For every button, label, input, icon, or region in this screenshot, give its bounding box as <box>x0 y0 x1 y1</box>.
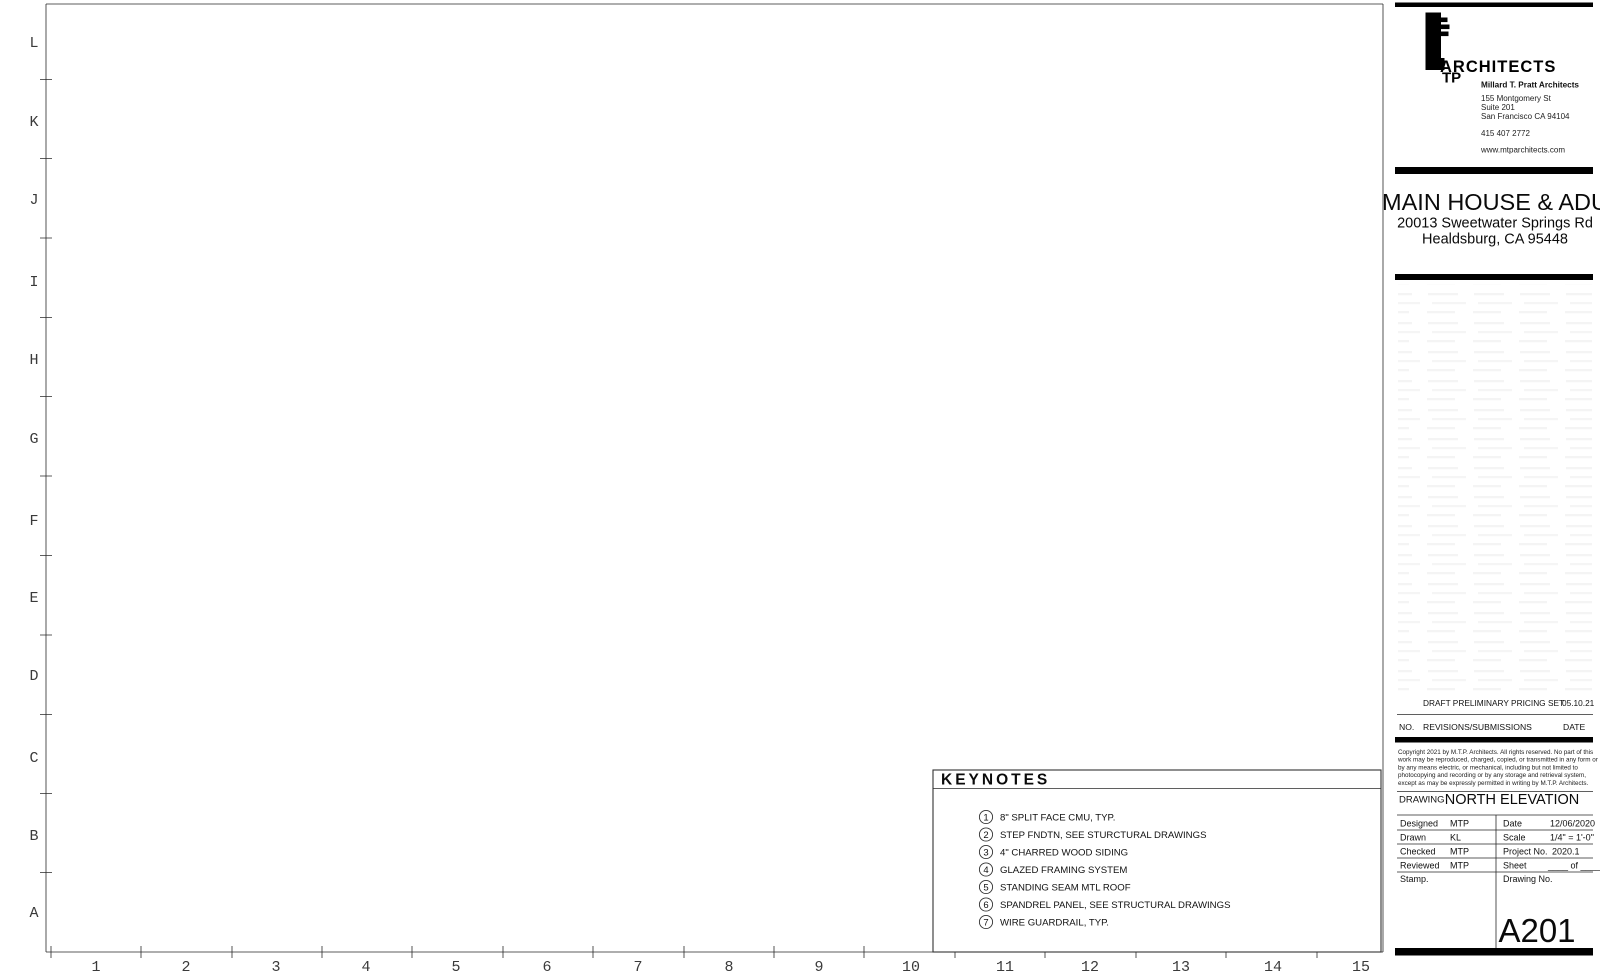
svg-text:M: M <box>1427 70 1440 87</box>
svg-text:Drawn: Drawn <box>1400 833 1426 843</box>
svg-text:Project No.: Project No. <box>1503 847 1548 857</box>
svg-text:2: 2 <box>181 959 190 976</box>
svg-text:2: 2 <box>983 830 988 841</box>
svg-text:4" CHARRED WOOD SIDING: 4" CHARRED WOOD SIDING <box>1000 848 1128 859</box>
svg-text:MAIN HOUSE & ADU: MAIN HOUSE & ADU <box>1382 189 1600 215</box>
svg-text:1: 1 <box>91 959 100 976</box>
svg-text:NO.: NO. <box>1399 722 1414 732</box>
svg-text:by any means electric, or mech: by any means electric, or mechanical, in… <box>1398 764 1578 771</box>
svg-text:6: 6 <box>983 900 988 911</box>
svg-text:9: 9 <box>814 959 823 976</box>
svg-text:K: K <box>29 114 38 131</box>
svg-text:G: G <box>29 431 38 448</box>
svg-text:____ of ____: ____ of ____ <box>1547 861 1600 871</box>
svg-text:Stamp.: Stamp. <box>1400 874 1429 884</box>
svg-text:10: 10 <box>902 959 920 976</box>
svg-text:Checked: Checked <box>1400 847 1436 857</box>
svg-text:DATE: DATE <box>1563 722 1586 732</box>
svg-text:4: 4 <box>361 959 370 976</box>
svg-text:I: I <box>29 274 38 291</box>
svg-text:F: F <box>29 513 38 530</box>
svg-text:5: 5 <box>451 959 460 976</box>
svg-text:A: A <box>29 905 38 922</box>
svg-text:2020.1: 2020.1 <box>1552 847 1580 857</box>
svg-text:B: B <box>29 828 38 845</box>
svg-text:20013 Sweetwater Springs Rd: 20013 Sweetwater Springs Rd <box>1397 216 1593 232</box>
svg-text:Copyright 2021 by M.T.P. Archi: Copyright 2021 by M.T.P. Architects. All… <box>1398 749 1593 756</box>
svg-text:STEP FNDTN, SEE STURCTURAL DRA: STEP FNDTN, SEE STURCTURAL DRAWINGS <box>1000 830 1206 841</box>
svg-text:Healdsburg, CA 95448: Healdsburg, CA 95448 <box>1422 232 1568 248</box>
svg-text:NORTH ELEVATION: NORTH ELEVATION <box>1445 792 1580 808</box>
svg-text:GLAZED FRAMING SYSTEM: GLAZED FRAMING SYSTEM <box>1000 865 1127 876</box>
svg-text:STANDING SEAM MTL ROOF: STANDING SEAM MTL ROOF <box>1000 883 1131 894</box>
svg-text:H: H <box>29 352 38 369</box>
svg-text:5: 5 <box>983 883 988 894</box>
svg-text:12/06/2020: 12/06/2020 <box>1550 819 1595 829</box>
svg-text:www.mtparchitects.com: www.mtparchitects.com <box>1480 146 1565 155</box>
svg-text:work may be reproduced, charge: work may be reproduced, charged, copied,… <box>1397 757 1598 764</box>
svg-text:Drawing No.: Drawing No. <box>1503 874 1553 884</box>
svg-text:MTP: MTP <box>1450 847 1469 857</box>
svg-text:DRAWING: DRAWING <box>1399 795 1445 806</box>
svg-text:L: L <box>29 35 38 52</box>
svg-text:MTP: MTP <box>1450 819 1469 829</box>
svg-text:1: 1 <box>983 813 988 824</box>
svg-text:7: 7 <box>633 959 642 976</box>
svg-text:8" SPLIT FACE CMU, TYP.: 8" SPLIT FACE CMU, TYP. <box>1000 813 1115 824</box>
svg-text:Reviewed: Reviewed <box>1400 861 1440 871</box>
svg-text:SPANDREL PANEL, SEE STRUCTURAL: SPANDREL PANEL, SEE STRUCTURAL DRAWINGS <box>1000 900 1230 911</box>
svg-text:WIRE GUARDRAIL, TYP.: WIRE GUARDRAIL, TYP. <box>1000 918 1109 929</box>
svg-text:Date: Date <box>1503 819 1522 829</box>
svg-text:7: 7 <box>983 918 988 929</box>
svg-text:Suite 201: Suite 201 <box>1481 103 1515 112</box>
svg-text:DRAFT PRELIMINARY PRICING SET: DRAFT PRELIMINARY PRICING SET <box>1423 698 1564 708</box>
svg-text:1/4" = 1'-0": 1/4" = 1'-0" <box>1550 833 1594 843</box>
svg-text:14: 14 <box>1264 959 1282 976</box>
svg-text:6: 6 <box>542 959 551 976</box>
svg-text:KL: KL <box>1450 833 1461 843</box>
svg-text:D: D <box>29 668 38 685</box>
svg-text:415 407 2772: 415 407 2772 <box>1481 129 1530 138</box>
svg-text:KEYNOTES: KEYNOTES <box>941 772 1050 789</box>
svg-text:8: 8 <box>724 959 733 976</box>
svg-text:12: 12 <box>1081 959 1099 976</box>
svg-text:except as may be expressly per: except as may be expressly permitted in … <box>1398 780 1589 787</box>
svg-text:Sheet: Sheet <box>1503 861 1527 871</box>
svg-text:REVISIONS/SUBMISSIONS: REVISIONS/SUBMISSIONS <box>1423 722 1532 732</box>
svg-text:05.10.21: 05.10.21 <box>1562 698 1595 708</box>
svg-text:J: J <box>29 192 38 209</box>
svg-text:3: 3 <box>983 848 988 859</box>
svg-text:3: 3 <box>271 959 280 976</box>
svg-text:11: 11 <box>996 959 1014 976</box>
svg-text:photocopying and recording or: photocopying and recording or by any sto… <box>1398 772 1586 779</box>
svg-text:Scale: Scale <box>1503 833 1526 843</box>
svg-text:E: E <box>29 590 38 607</box>
svg-text:San Francisco CA 94104: San Francisco CA 94104 <box>1481 112 1570 121</box>
svg-text:155 Montgomery St: 155 Montgomery St <box>1481 94 1552 103</box>
svg-text:TP: TP <box>1442 70 1461 87</box>
svg-text:4: 4 <box>983 865 988 876</box>
svg-text:Designed: Designed <box>1400 819 1438 829</box>
svg-text:MTP: MTP <box>1450 861 1469 871</box>
svg-text:C: C <box>29 750 38 767</box>
svg-text:Millard T. Pratt Architects: Millard T. Pratt Architects <box>1481 81 1579 90</box>
svg-text:15: 15 <box>1352 959 1370 976</box>
svg-text:13: 13 <box>1172 959 1190 976</box>
svg-text:A201: A201 <box>1498 912 1575 949</box>
